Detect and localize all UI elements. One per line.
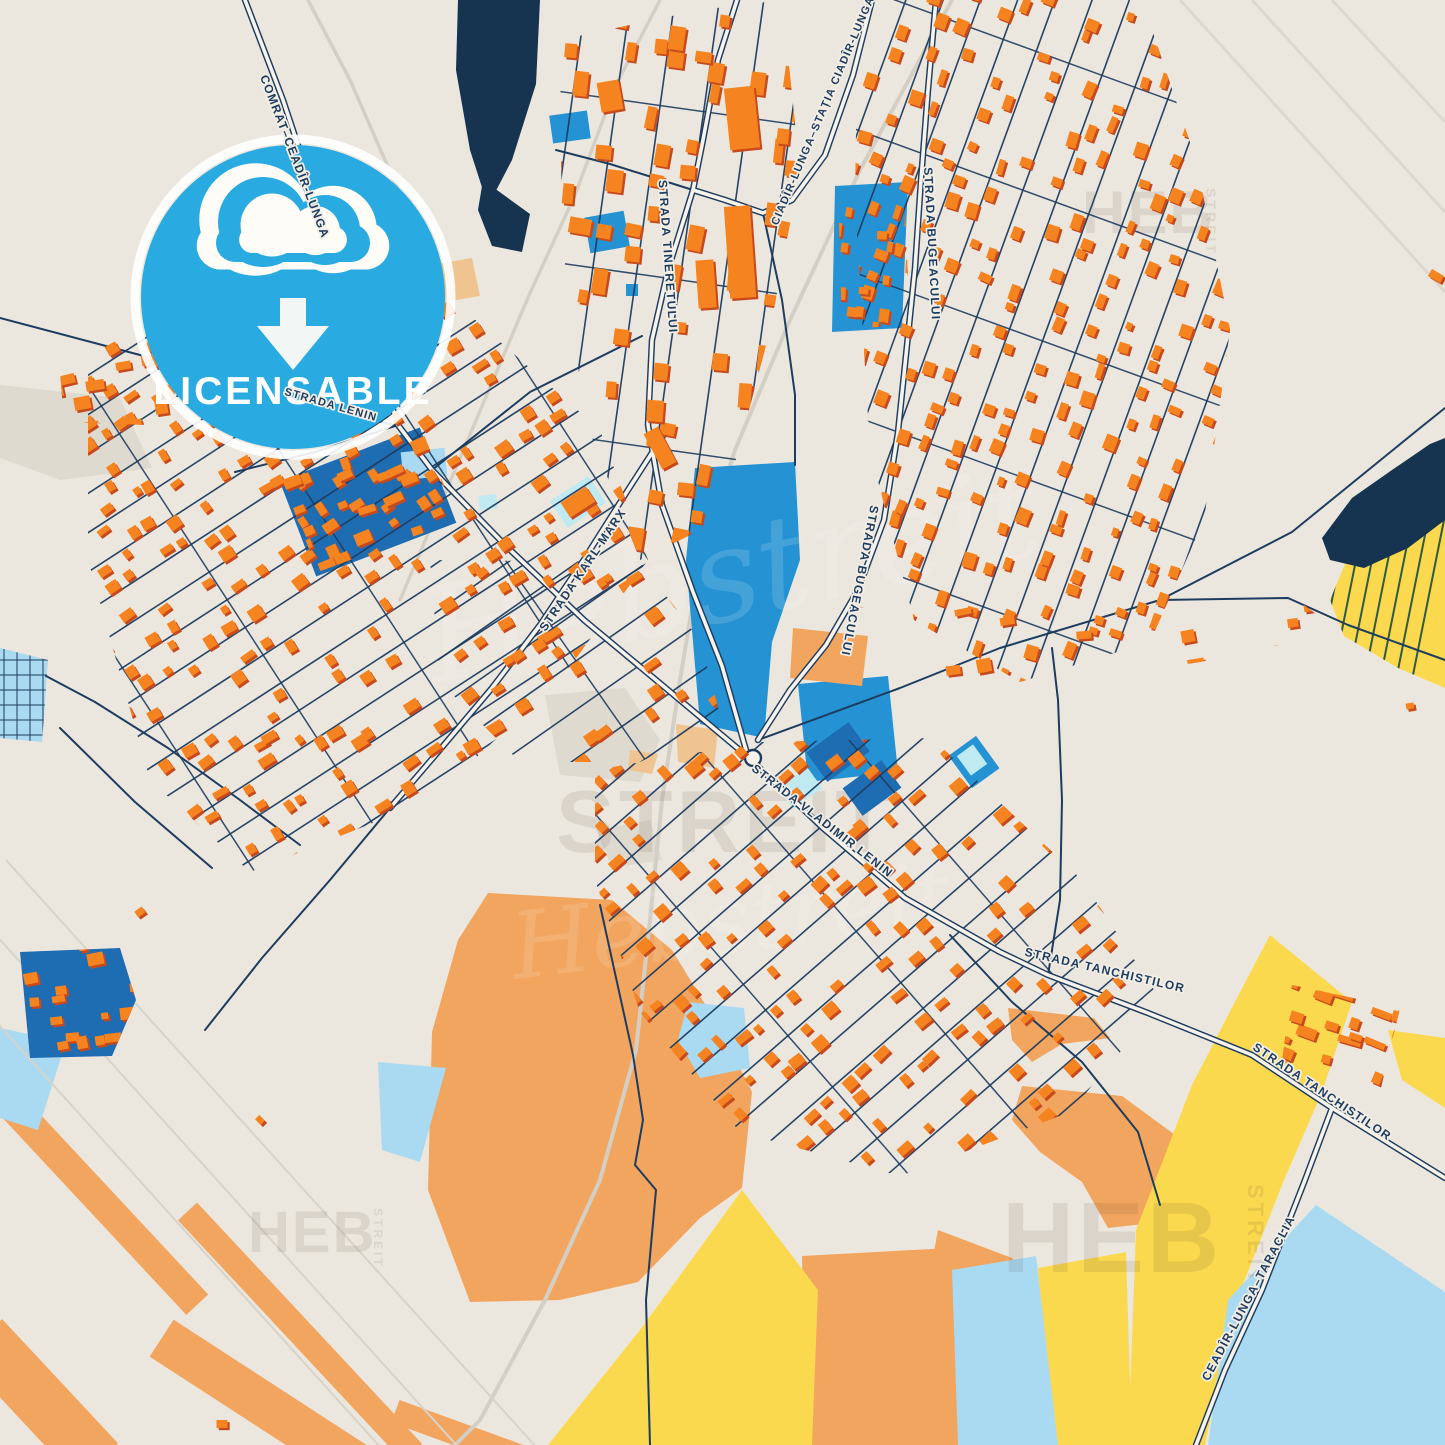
licensable-badge[interactable]: LICENSABLE xyxy=(135,139,451,455)
orange-field xyxy=(802,1248,962,1445)
watermark-text: STREIT xyxy=(1203,188,1219,256)
watermark-text: HEB xyxy=(248,1200,376,1265)
city-map: HEBSTREITSTREITHEBSTREITHEBSTREITHebstre… xyxy=(0,0,1445,1445)
park xyxy=(626,284,638,296)
map-poster: HEBSTREITSTREITHEBSTREITHEBSTREITHebstre… xyxy=(0,0,1445,1445)
watermark-text: STREIT xyxy=(371,1208,385,1269)
pool xyxy=(478,494,497,510)
watermark-text: HEB xyxy=(1002,1182,1222,1294)
lightblue-grid-area xyxy=(0,648,48,742)
